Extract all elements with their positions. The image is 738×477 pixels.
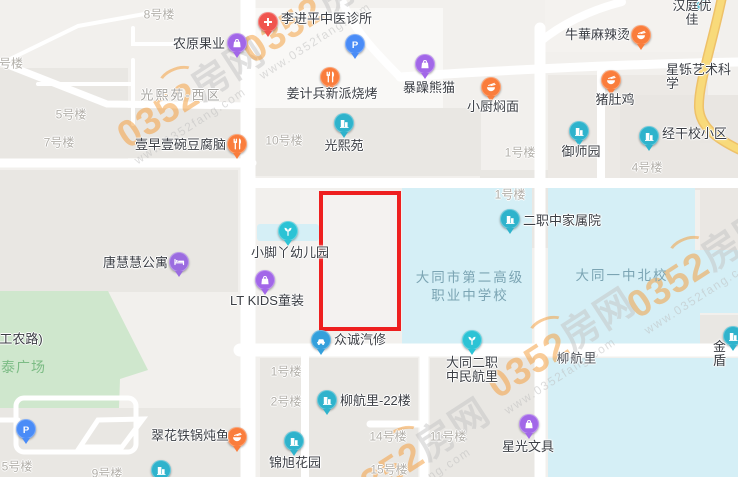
highlight-parcel-rectangle (319, 191, 401, 331)
building-label: 7号楼 (44, 134, 75, 151)
tai-plaza-label: 泰广场 (1, 357, 46, 377)
yizao-tofu-pin[interactable] (227, 134, 247, 154)
building-label: 1号楼 (505, 144, 536, 161)
estate-partial-bottom-pin[interactable] (151, 460, 171, 477)
pin-tail (637, 44, 645, 50)
lt-kids-pin[interactable] (255, 270, 275, 290)
yushiyuan-label[interactable]: 御师园 (561, 145, 600, 159)
xiaochu-noodles-label[interactable]: 小厨焖面 (467, 100, 519, 114)
baozao-panda-pin[interactable] (415, 54, 435, 74)
pin-tail (317, 349, 325, 355)
zhongcheng-auto-label[interactable]: 众诚汽修 (334, 333, 386, 347)
gongnong-road-label: (工农路) (0, 329, 43, 348)
svg-text:P: P (23, 425, 30, 435)
pin-tail (340, 132, 348, 138)
xiaochu-noodles-pin[interactable] (481, 77, 501, 97)
pin-tail (645, 145, 653, 151)
nongyuan-fruit-label[interactable]: 农原果业 (173, 37, 225, 51)
building-label: 5号楼 (56, 106, 87, 123)
building-label: 10号楼 (265, 132, 302, 149)
pin-tail (468, 349, 476, 355)
zhongcheng-auto-pin[interactable] (311, 330, 331, 350)
pin-tail (22, 438, 30, 444)
map-canvas[interactable]: 0352房网www.0352fang.com0352房网www.0352fang… (0, 0, 738, 477)
cuihua-fish-label[interactable]: 翠花铁锅炖鱼 (151, 429, 229, 443)
xingguang-stationery-label[interactable]: 星光文具 (502, 440, 554, 454)
xiaojiaoya-kindergarten-pin[interactable] (278, 221, 298, 241)
building-label: 11号楼 (430, 428, 466, 445)
guangxiyuan-west-area-label: 光熙苑-西区 (140, 85, 221, 104)
parking-south-pin[interactable]: P (16, 419, 36, 439)
niuhua-malatang-pin[interactable] (631, 25, 651, 45)
tanghuihui-apartment-label[interactable]: 唐慧慧公寓 (103, 256, 168, 270)
jinxu-garden-pin[interactable] (284, 431, 304, 451)
daerzhi-minhangli-label[interactable]: 大同二职 中民航里 (446, 356, 498, 384)
building-label: 9号楼 (92, 465, 123, 477)
erzhi-family-yard-label[interactable]: 二职中家属院 (523, 214, 601, 228)
svg-text:P: P (352, 40, 359, 50)
pin-tail (264, 31, 272, 37)
yushiyuan-pin[interactable] (569, 121, 589, 141)
cuihua-fish-pin[interactable] (227, 427, 247, 447)
no2-vocational-school-area-label: 大同市第二高级 职业中学校 (416, 269, 525, 305)
liuhangli-road-label: 柳航里 (557, 348, 598, 367)
building-label: 2号楼 (271, 393, 302, 410)
building-label: 15号楼 (370, 461, 407, 477)
jingganxiao-pin[interactable] (639, 126, 659, 146)
building-label: 4号楼 (632, 159, 663, 176)
jinxu-garden-label[interactable]: 锦旭花园 (269, 456, 321, 470)
guangxiyuan-pin[interactable] (334, 113, 354, 133)
pin-tail (233, 52, 241, 58)
jiangjibing-bbq-label[interactable]: 姜计兵新派烧烤 (286, 87, 377, 101)
pin-tail (175, 271, 183, 277)
pin-tail (525, 433, 533, 439)
hanting-hotel-label[interactable]: 汉庭优佳 (669, 0, 715, 27)
niuhua-malatang-label[interactable]: 牛華麻辣烫 (565, 28, 630, 42)
pin-tail (233, 446, 241, 452)
xiaojiaoya-kindergarten-label[interactable]: 小脚丫幼儿园 (251, 246, 329, 260)
zhudu-chicken-pin[interactable] (601, 70, 621, 90)
pin-tail (506, 228, 514, 234)
building-label: 号楼 (0, 55, 23, 72)
lijinping-clinic-pin[interactable] (258, 12, 278, 32)
lijinping-clinic-label[interactable]: 李进平中医诊所 (281, 12, 372, 26)
baozao-panda-label[interactable]: 暴躁熊猫 (403, 81, 455, 95)
building-label: 8号楼 (144, 6, 175, 23)
erzhi-family-yard-pin[interactable] (500, 209, 520, 229)
xingshuo-art-science-label[interactable]: 星铄艺术科学 (666, 63, 738, 91)
xingguang-stationery-pin[interactable] (519, 414, 539, 434)
zhudu-chicken-label[interactable]: 猪肚鸡 (595, 93, 634, 107)
lt-kids-label[interactable]: LT KIDS童装 (230, 294, 304, 308)
building-label: 1号楼 (271, 363, 302, 380)
datong-no1-middle-north-area-label: 大同一中北校 (576, 267, 669, 285)
parking-north-pin[interactable]: P (345, 34, 365, 54)
liuhangli-22-pin[interactable] (317, 390, 337, 410)
school-area-south (548, 358, 738, 477)
building-label: 14号楼 (369, 428, 406, 445)
tanghuihui-apartment-pin[interactable] (169, 252, 189, 272)
pin-tail (421, 73, 429, 79)
nongyuan-fruit-pin[interactable] (227, 33, 247, 53)
pin-tail (233, 153, 241, 159)
yizao-tofu-label[interactable]: 壹早壹碗豆腐脑 (135, 138, 226, 152)
building-label: 5号楼 (2, 458, 33, 475)
daerzhi-minhangli-pin[interactable] (462, 330, 482, 350)
jingganxiao-label[interactable]: 经干校小区 (662, 127, 727, 141)
jindun-label[interactable]: 金盾 (713, 340, 738, 368)
pin-tail (323, 409, 331, 415)
guangxiyuan-label[interactable]: 光熙苑 (324, 139, 363, 153)
pin-tail (351, 53, 359, 59)
liuhangli-22-label[interactable]: 柳航里-22楼 (340, 394, 411, 408)
building-label: 1号楼 (495, 186, 526, 203)
jiangjibing-bbq-pin[interactable] (320, 67, 340, 87)
